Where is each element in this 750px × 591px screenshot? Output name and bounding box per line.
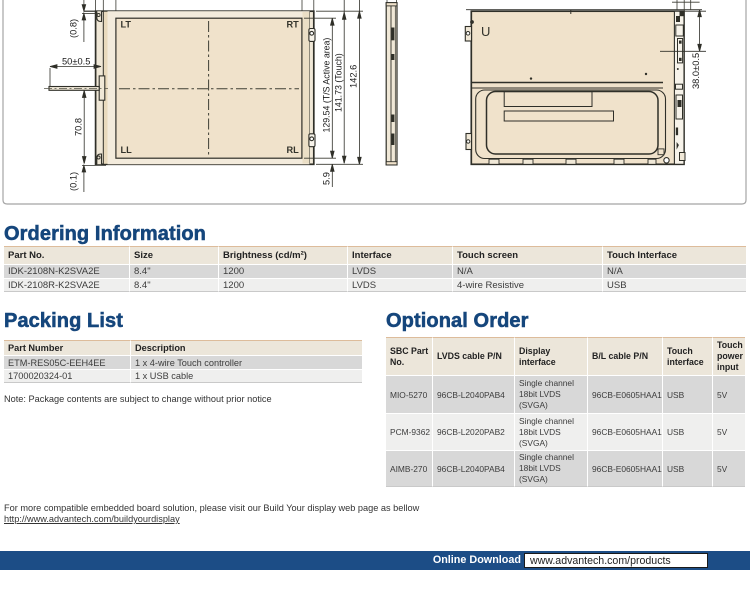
svg-text:129.54 (T/S Active area): 129.54 (T/S Active area) <box>322 38 332 133</box>
svg-text:LT: LT <box>121 20 132 30</box>
svg-text:142.6: 142.6 <box>349 65 359 88</box>
svg-text:(0.8): (0.8) <box>69 19 79 38</box>
svg-text:U: U <box>481 24 490 39</box>
svg-text:38.0±0.5: 38.0±0.5 <box>691 53 701 89</box>
svg-text:LL: LL <box>121 145 133 155</box>
svg-text:RL: RL <box>287 145 300 155</box>
svg-text:141.73 (Touch): 141.73 (Touch) <box>334 53 344 112</box>
svg-text:50±0.5: 50±0.5 <box>62 57 90 67</box>
svg-text:5.9: 5.9 <box>322 172 332 185</box>
svg-text:70.8: 70.8 <box>74 118 84 136</box>
svg-text:RT: RT <box>287 20 300 30</box>
svg-text:(0.1): (0.1) <box>69 172 79 191</box>
